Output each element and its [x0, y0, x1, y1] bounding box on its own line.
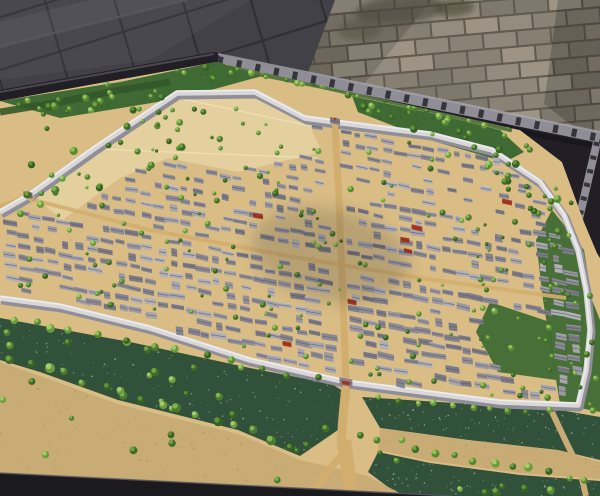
scene-root: [0, 0, 600, 496]
city-model-scene: [0, 0, 600, 496]
museum-exhibit-photo: [0, 0, 600, 496]
